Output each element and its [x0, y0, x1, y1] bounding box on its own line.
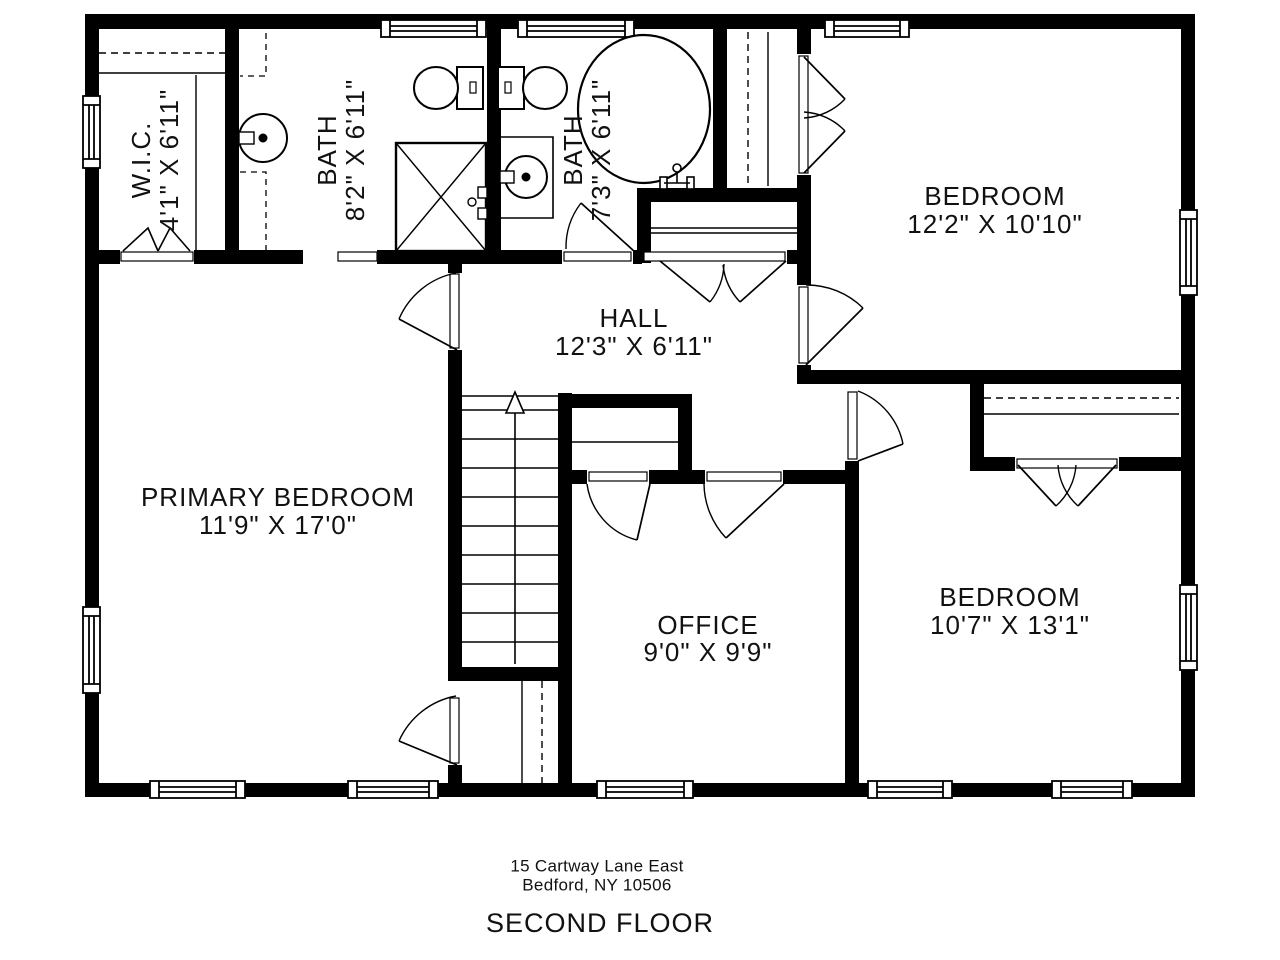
under-stair-closet — [522, 681, 542, 783]
floor-title: SECOND FLOOR — [486, 908, 714, 938]
wic-name: W.I.C. — [126, 122, 156, 199]
hall-name: HALL — [599, 303, 668, 333]
window — [1180, 210, 1197, 295]
bedroom2-closet-opening — [1017, 459, 1117, 468]
linen-closet-opening — [644, 252, 785, 261]
bath1-pocket-door — [338, 252, 377, 261]
wic-dims: 4'1" X 6'11" — [154, 89, 184, 232]
office-name: OFFICE — [657, 610, 758, 640]
linen-closet-shelves — [651, 228, 797, 233]
office-door-opening — [707, 472, 781, 481]
stair-treads — [462, 410, 558, 642]
window — [868, 781, 952, 798]
window — [518, 20, 634, 37]
office-dims: 9'0" X 9'9" — [643, 637, 772, 667]
window — [1052, 781, 1132, 798]
bedroom2-name: BEDROOM — [939, 582, 1080, 612]
floor-plan-drawing: W.I.C. 4'1" X 6'11" BATH 8'2" X 6'11" BA… — [0, 0, 1280, 960]
bath2-dims: 7'3" X 6'11" — [586, 79, 616, 222]
bath1-vanity — [239, 33, 287, 250]
bedroom2-door — [858, 391, 903, 461]
window — [83, 607, 100, 693]
primary-door-opening — [450, 274, 459, 348]
bedroom1-closet-rod — [748, 32, 768, 186]
bedroom1-closet-opening — [799, 56, 808, 173]
bath1-toilet — [414, 67, 483, 109]
primary-closet-opening — [450, 698, 459, 763]
office-closet-door — [587, 484, 650, 540]
bath2-door-opening — [564, 252, 631, 261]
window — [381, 20, 486, 37]
stair-direction-arrow — [506, 392, 524, 664]
bath2-vanity — [500, 137, 553, 218]
primary-dims: 11'9" X 17'0" — [199, 510, 357, 540]
bedroom2-door-opening — [848, 392, 857, 459]
room-label-hall: HALL 12'3" X 6'11" — [555, 303, 713, 361]
bath2-name: BATH — [558, 114, 588, 185]
address-line2: Bedford, NY 10506 — [522, 876, 671, 895]
wic-bifold-opening — [121, 252, 193, 261]
bath2-sink — [500, 156, 547, 198]
room-label-primary: PRIMARY BEDROOM 11'9" X 17'0" — [141, 482, 415, 540]
bedroom1-name: BEDROOM — [924, 181, 1065, 211]
window — [1180, 585, 1197, 670]
window — [150, 781, 245, 798]
floor-plan-page: W.I.C. 4'1" X 6'11" BATH 8'2" X 6'11" BA… — [0, 0, 1280, 960]
room-label-bedroom1: BEDROOM 12'2" X 10'10" — [907, 181, 1082, 239]
bath2-toilet — [498, 67, 567, 109]
room-label-bath2: BATH 7'3" X 6'11" — [558, 79, 616, 222]
bedroom2-closet-doors — [1018, 465, 1116, 506]
stairs — [462, 392, 558, 783]
linen-closet-doors — [660, 261, 786, 302]
bath1-dims: 8'2" X 6'11" — [340, 79, 370, 222]
plan-footer: 15 Cartway Lane East Bedford, NY 10506 S… — [486, 857, 714, 939]
office-closet-opening — [589, 472, 647, 481]
bath1-name: BATH — [312, 114, 342, 185]
bedroom1-door — [806, 285, 863, 365]
window — [83, 96, 100, 168]
office-door — [704, 484, 784, 538]
bedroom2-closet-rod — [984, 398, 1179, 414]
bedroom1-dims: 12'2" X 10'10" — [907, 209, 1082, 239]
bath1-shower — [396, 143, 487, 251]
window — [348, 781, 438, 798]
primary-bedroom-door — [399, 273, 457, 350]
room-label-bath1: BATH 8'2" X 6'11" — [312, 79, 370, 222]
bath1-sink — [239, 114, 287, 162]
primary-closet-door — [399, 696, 457, 765]
room-label-wic: W.I.C. 4'1" X 6'11" — [126, 89, 184, 232]
window — [825, 20, 909, 37]
bedroom2-dims: 10'7" X 13'1" — [930, 610, 1090, 640]
room-label-bedroom2: BEDROOM 10'7" X 13'1" — [930, 582, 1090, 640]
room-label-office: OFFICE 9'0" X 9'9" — [643, 610, 772, 667]
primary-name: PRIMARY BEDROOM — [141, 482, 415, 512]
window — [597, 781, 693, 798]
bedroom1-closet-doors — [804, 57, 845, 173]
hall-dims: 12'3" X 6'11" — [555, 331, 713, 361]
address-line1: 15 Cartway Lane East — [510, 857, 683, 876]
bedroom1-door-opening — [799, 287, 808, 363]
